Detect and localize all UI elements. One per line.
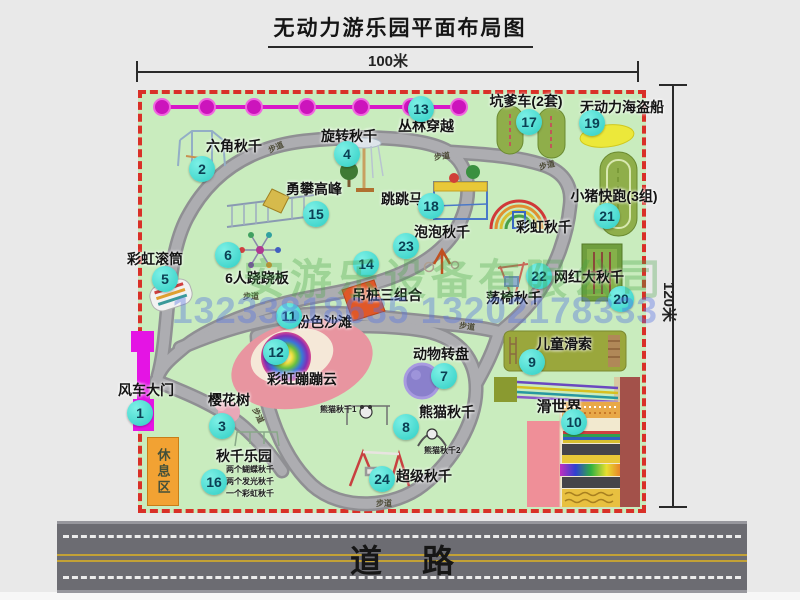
road: 道路 <box>57 521 747 593</box>
label-bubble-swing: 泡泡秋千 <box>414 222 470 242</box>
swing-park-note: 两个蝴蝶秋千 <box>226 464 274 476</box>
label-rainbow-swing: 彩虹秋千 <box>516 217 572 237</box>
page-title-text: 无动力游乐园平面布局图 <box>268 12 533 48</box>
width-dimension-line <box>137 71 638 73</box>
badge-13: 13 <box>408 96 434 122</box>
bottom-margin <box>0 592 800 600</box>
label-hexagon-swing: 六角秋千 <box>206 136 262 156</box>
badge-7: 7 <box>431 363 457 389</box>
label-windmill-gate: 风车大门 <box>118 380 174 400</box>
badge-15: 15 <box>303 201 329 227</box>
label-piggy-run: 小猪快跑(3组) <box>570 186 657 206</box>
label-rainbow-roller: 彩虹滚筒 <box>127 249 183 269</box>
playground-layout-poster: 无动力游乐园平面布局图 100米 120米 <box>0 0 800 600</box>
height-dimension-tick-bottom <box>659 506 687 508</box>
width-dimension-label: 100米 <box>368 50 408 71</box>
label-panda-swing-2: 熊猫秋千2 <box>424 445 460 456</box>
badge-12: 12 <box>263 339 289 365</box>
badge-2: 2 <box>189 156 215 182</box>
width-dimension-tick-right <box>637 61 639 82</box>
label-panda-swing-1: 熊猫秋千1 <box>320 404 356 415</box>
rest-area-label: 休息区 <box>154 448 173 496</box>
height-dimension-label: 120米 <box>659 282 680 322</box>
label-super-swing: 超级秋千 <box>396 466 452 486</box>
badge-8: 8 <box>393 414 419 440</box>
badge-24: 24 <box>369 466 395 492</box>
label-kids-zipline: 儿童滑索 <box>536 334 592 354</box>
swing-park-note: 两个发光秋千 <box>226 476 274 488</box>
label-pit-cars: 坑爹车(2套) <box>489 91 562 111</box>
page-title: 无动力游乐园平面布局图 <box>0 12 800 48</box>
label-panda-swing: 熊猫秋千 <box>419 402 475 422</box>
badge-18: 18 <box>418 193 444 219</box>
swing-park-note: 一个彩虹秋千 <box>226 488 274 500</box>
watermark-phone-numbers: 13233818635 13202178333 <box>172 290 658 332</box>
badge-1: 1 <box>127 400 153 426</box>
badge-19: 19 <box>579 110 605 136</box>
label-swing-park: 秋千乐园 <box>216 446 272 466</box>
rest-area: 休息区 <box>147 437 179 506</box>
badge-3: 3 <box>209 413 235 439</box>
height-dimension-tick-top <box>659 84 687 86</box>
badge-6: 6 <box>215 242 241 268</box>
walkway-label: 步道 <box>433 150 450 163</box>
badge-5: 5 <box>152 266 178 292</box>
badge-17: 17 <box>516 109 542 135</box>
badge-4: 4 <box>334 141 360 167</box>
label-animal-turntable: 动物转盘 <box>413 344 469 364</box>
label-rainbow-bounce-cloud: 彩虹蹦蹦云 <box>267 369 337 389</box>
walkway-label: 步道 <box>376 498 392 509</box>
badge-9: 9 <box>519 349 545 375</box>
road-label: 道路 <box>57 536 747 582</box>
label-jumping-horse: 跳跳马 <box>381 189 423 209</box>
badge-10: 10 <box>561 409 587 435</box>
swing-park-notes: 两个蝴蝶秋千 两个发光秋千 一个彩虹秋千 <box>226 464 274 500</box>
badge-21: 21 <box>594 203 620 229</box>
badge-16: 16 <box>201 469 227 495</box>
label-climbing-peak: 勇攀高峰 <box>286 179 342 199</box>
label-cherry-tree: 樱花树 <box>208 390 250 410</box>
width-dimension-tick-left <box>136 61 138 82</box>
